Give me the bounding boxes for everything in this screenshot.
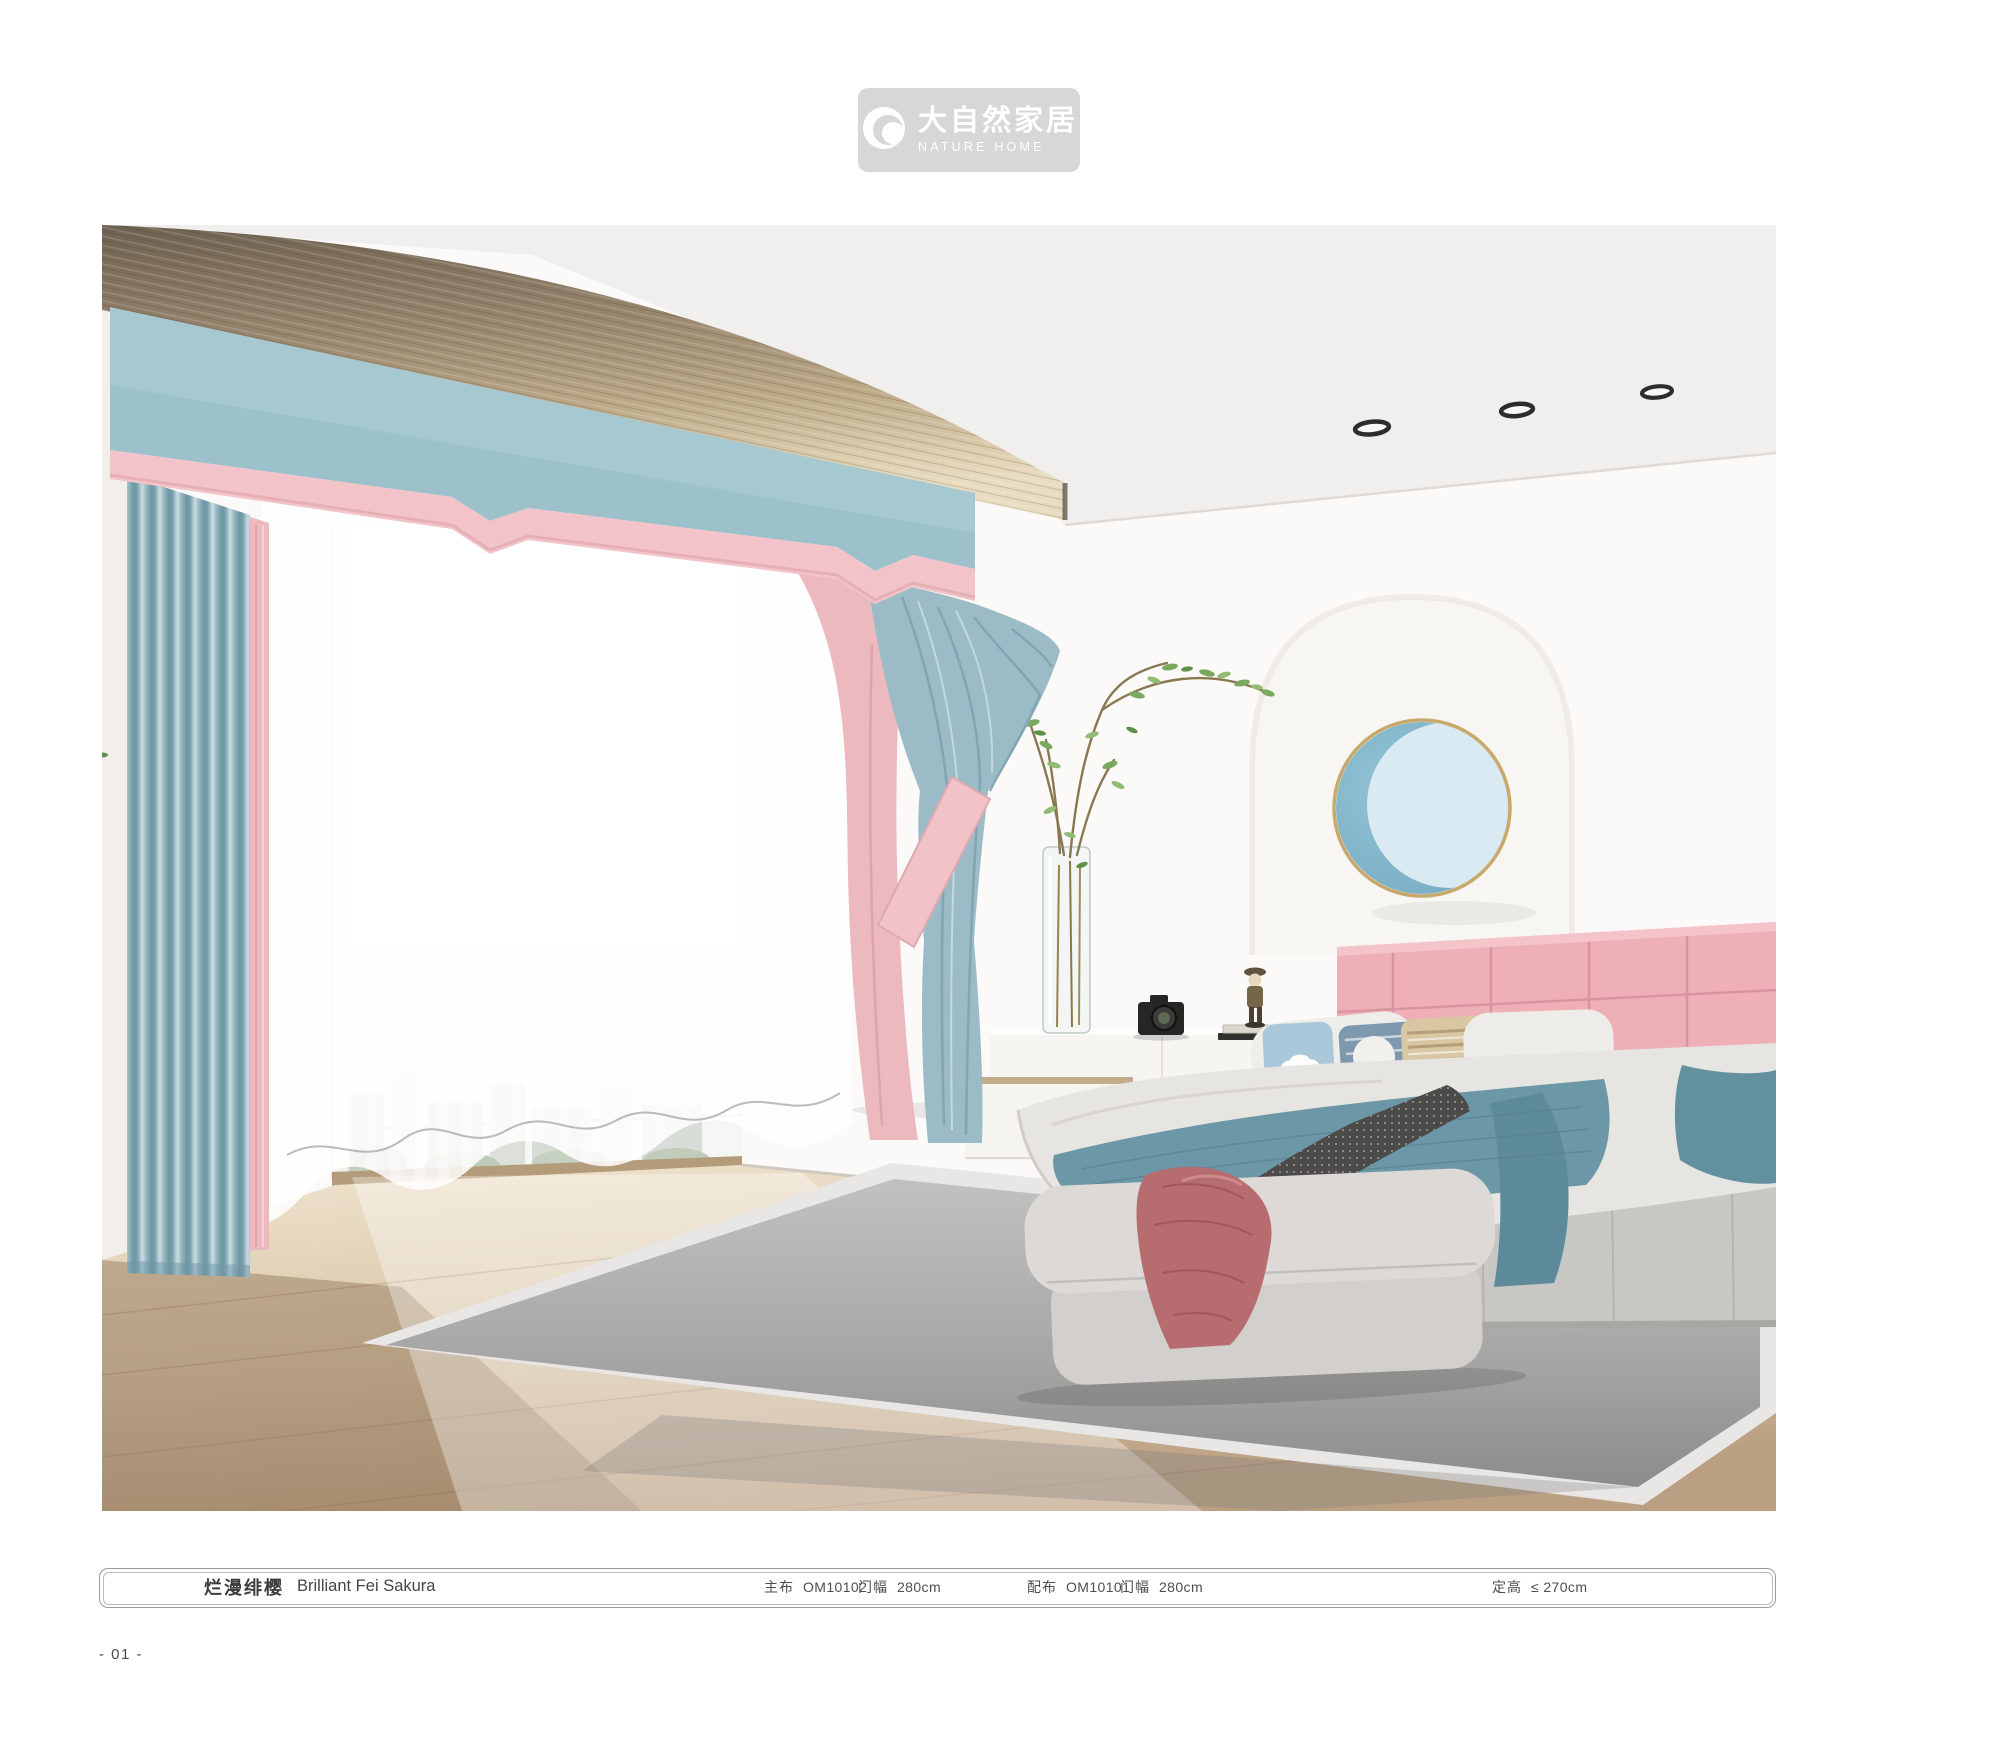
spec-label: 定高 [1492,1577,1522,1597]
spec-accent-width: 门幅 280cm [1120,1569,1203,1604]
spec-label: 门幅 [858,1577,888,1597]
spec-value: 280cm [1159,1579,1203,1595]
spec-value: ≤ 270cm [1531,1579,1587,1595]
spec-label: 配布 [1027,1577,1057,1597]
brand-name-en: NATURE HOME [918,141,1078,154]
sheer-curtain [262,493,852,1225]
spec-value: 280cm [897,1579,941,1595]
product-title-en: Brilliant Fei Sakura [297,1569,435,1604]
spec-main-fabric: 主布 OM10102 [764,1569,867,1604]
product-title-cn: 烂漫绯樱 [204,1569,284,1604]
brand-name-cn: 大自然家居 [918,107,1078,136]
spec-bar: 烂漫绯樱 Brilliant Fei Sakura 主布 OM10102 门幅 … [99,1568,1776,1608]
product-photo [102,225,1776,1511]
spec-accent-fabric: 配布 OM10101 [1027,1569,1130,1604]
bench [1008,1166,1527,1414]
accent-curtain-strip [250,517,269,1251]
spec-fixed-height: 定高 ≤ 270cm [1492,1569,1587,1604]
nature-home-logo-icon [860,104,908,157]
page-number: - 01 - [99,1646,143,1663]
teal-drape-right [1675,1065,1776,1184]
spec-main-width: 门幅 280cm [858,1569,941,1604]
left-curtain [127,475,250,1277]
glass-vase [1043,847,1090,1033]
brand-logo-badge: 大自然家居 NATURE HOME [858,88,1080,172]
spec-label: 主布 [764,1577,794,1597]
spec-label: 门幅 [1120,1577,1150,1597]
